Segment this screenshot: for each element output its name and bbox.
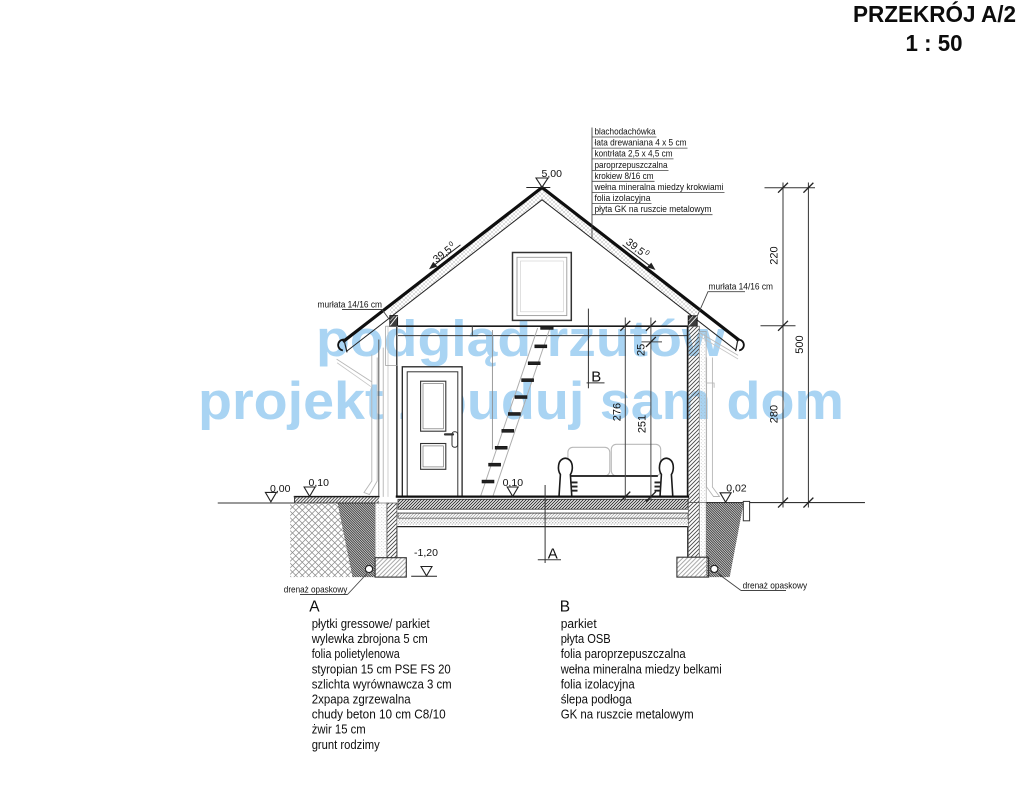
svg-text:chudy beton 10 cm C8/10: chudy beton 10 cm C8/10 [312, 707, 446, 722]
svg-text:276: 276 [611, 403, 623, 421]
svg-text:płyta OSB: płyta OSB [561, 631, 611, 646]
svg-text:murłata 14/16 cm: murłata 14/16 cm [709, 281, 774, 292]
svg-text:kontrłata 2,5 x 4,5 cm: kontrłata 2,5 x 4,5 cm [595, 148, 673, 159]
svg-text:0,00: 0,00 [270, 483, 291, 495]
svg-text:płytki gressowe/ parkiet: płytki gressowe/ parkiet [312, 616, 430, 631]
svg-text:wylewka zbrojona 5 cm: wylewka zbrojona 5 cm [311, 631, 428, 646]
svg-text:220: 220 [769, 246, 781, 264]
svg-text:GK na ruszcie metalowym: GK na ruszcie metalowym [561, 707, 694, 722]
svg-text:łata drewaniana 4 x 5 cm: łata drewaniana 4 x 5 cm [595, 138, 687, 149]
svg-text:parkiet: parkiet [561, 616, 597, 631]
svg-text:drenaż opaskowy: drenaż opaskowy [284, 585, 348, 596]
svg-text:blachodachówka: blachodachówka [595, 127, 657, 138]
svg-text:paroprzepuszczalna: paroprzepuszczalna [595, 160, 669, 171]
svg-text:1 : 50: 1 : 50 [906, 30, 963, 56]
svg-text:folia paroprzepuszczalna: folia paroprzepuszczalna [561, 646, 687, 661]
svg-text:251: 251 [637, 415, 649, 433]
svg-text:projekt Zbuduj sam dom: projekt Zbuduj sam dom [198, 372, 844, 431]
svg-text:folia polietylenowa: folia polietylenowa [312, 646, 401, 661]
svg-text:5,00: 5,00 [542, 168, 563, 180]
svg-text:folia izolacyjna: folia izolacyjna [595, 193, 652, 204]
svg-text:0,02: 0,02 [726, 483, 747, 495]
svg-text:szlichta wyrównawcza 3 cm: szlichta wyrównawcza 3 cm [312, 676, 452, 691]
svg-text:wełna mineralna miedzy belkami: wełna mineralna miedzy belkami [560, 661, 722, 676]
svg-text:wełna mineralna miedzy krokwia: wełna mineralna miedzy krokwiami [594, 182, 724, 193]
svg-text:25: 25 [636, 344, 648, 356]
svg-text:grunt rodzimy: grunt rodzimy [312, 737, 380, 752]
svg-text:żwir 15 cm: żwir 15 cm [312, 722, 366, 737]
svg-text:280: 280 [769, 405, 781, 423]
svg-text:0,10: 0,10 [503, 477, 524, 489]
svg-text:folia izolacyjna: folia izolacyjna [561, 676, 636, 691]
svg-text:ślepa podłoga: ślepa podłoga [561, 692, 633, 707]
svg-text:-1,20: -1,20 [414, 547, 438, 559]
svg-text:krokiew 8/16 cm: krokiew 8/16 cm [595, 171, 654, 182]
svg-text:murłata 14/16 cm: murłata 14/16 cm [318, 300, 383, 311]
svg-text:0,10: 0,10 [309, 477, 330, 489]
svg-text:2xpapa zgrzewalna: 2xpapa zgrzewalna [312, 692, 412, 707]
svg-text:B: B [560, 599, 570, 616]
svg-text:styropian 15 cm PSE FS 20: styropian 15 cm PSE FS 20 [312, 661, 451, 676]
svg-text:500: 500 [794, 335, 806, 353]
svg-text:płyta GK na ruszcie metalowym: płyta GK na ruszcie metalowym [595, 204, 712, 215]
svg-text:A: A [309, 599, 320, 616]
svg-text:PRZEKRÓJ A/2: PRZEKRÓJ A/2 [853, 0, 1016, 27]
svg-text:drenaż opaskowy: drenaż opaskowy [743, 581, 808, 592]
